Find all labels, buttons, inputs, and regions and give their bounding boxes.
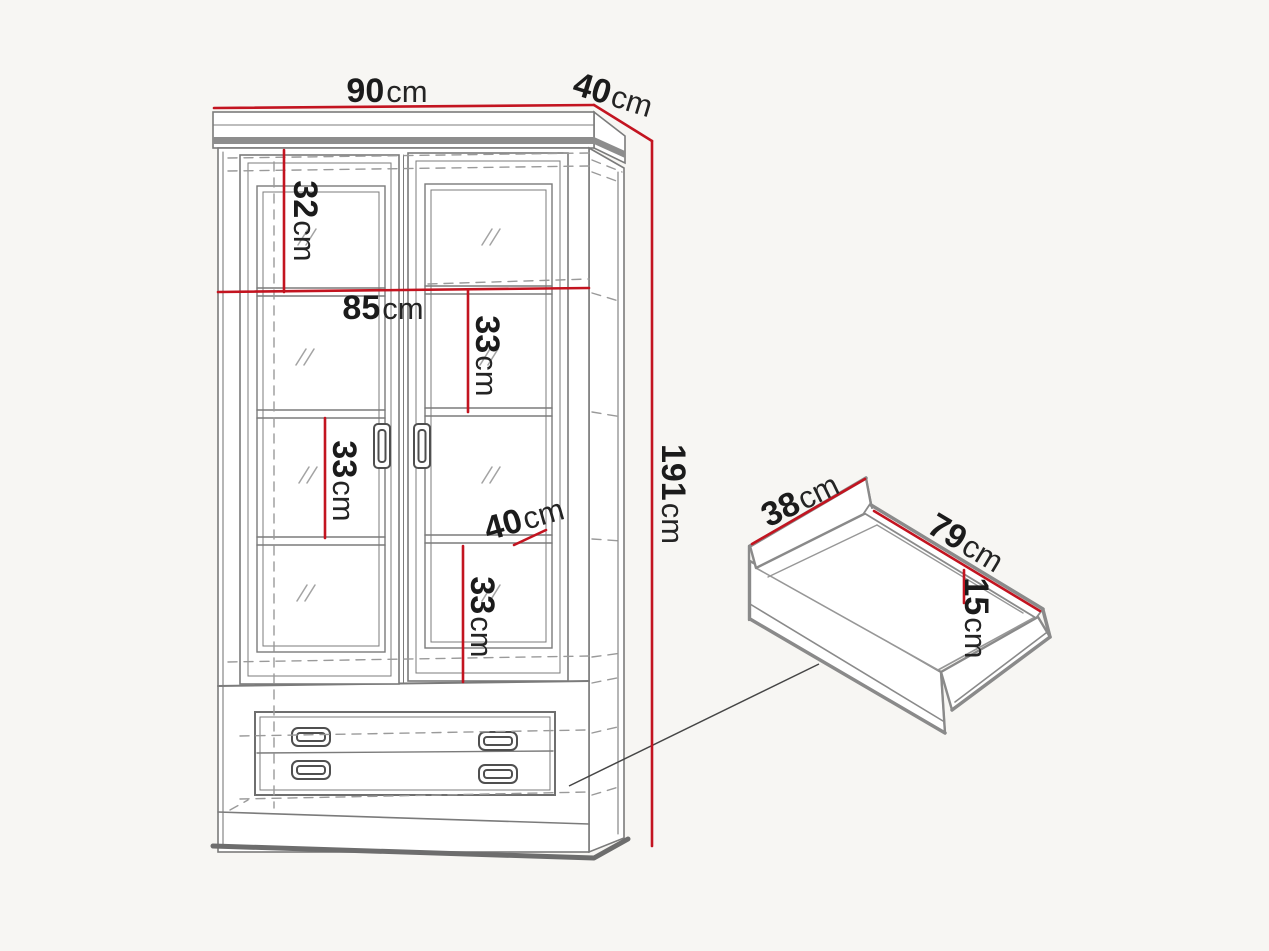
technical-drawing bbox=[0, 0, 1269, 951]
dim-line-width-90 bbox=[214, 105, 594, 108]
furniture-dimension-diagram: 90 cm 40 cm 191 cm 32 cm 85 cm 33 cm 33 … bbox=[0, 0, 1269, 951]
left-glass-door bbox=[240, 155, 399, 684]
right-glass-door bbox=[408, 153, 568, 681]
drawer-detail-view bbox=[749, 478, 1050, 733]
cabinet-front-view bbox=[213, 112, 628, 858]
cabinet-drawer-fronts bbox=[255, 712, 555, 795]
